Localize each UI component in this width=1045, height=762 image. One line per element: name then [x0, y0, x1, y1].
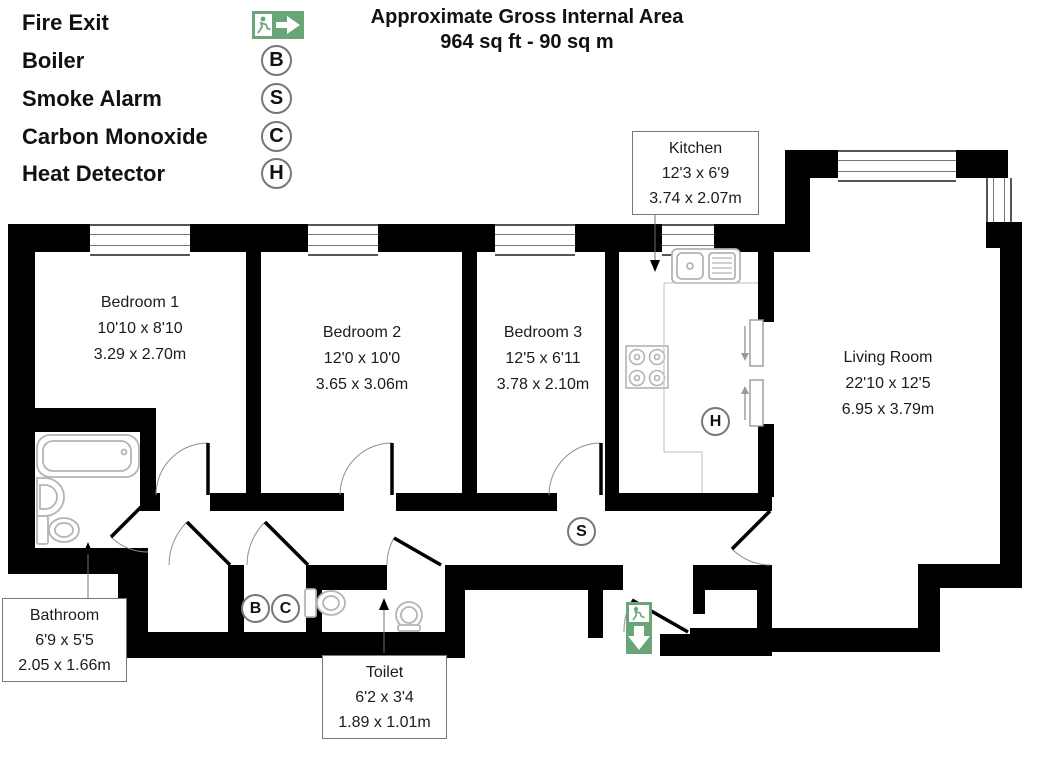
bathroom-name: Bathroom: [5, 603, 124, 628]
bathroom-imperial: 6'9 x 5'5: [5, 628, 124, 653]
boiler-symbol-plan: B: [241, 594, 270, 623]
toilet-label-box: Toilet 6'2 x 3'4 1.89 x 1.01m: [322, 655, 447, 739]
boiler-letter-plan: B: [250, 600, 262, 618]
window: [308, 224, 378, 256]
toilet-metric: 1.89 x 1.01m: [325, 710, 444, 735]
wall: [660, 634, 772, 656]
title-line-2: 964 sq ft - 90 sq m: [371, 30, 684, 55]
bedroom2-door: [340, 443, 392, 495]
entrance-door: [624, 600, 688, 632]
bedroom2-metric: 3.65 x 3.06m: [316, 372, 409, 398]
wall: [757, 590, 772, 638]
bedroom3-door: [549, 443, 601, 495]
wall: [605, 493, 772, 511]
boiler-symbol-legend: B: [261, 45, 292, 76]
smoke-alarm-symbol-legend: S: [261, 83, 292, 114]
toilet-door: [387, 538, 441, 565]
wall: [605, 252, 619, 495]
wall: [758, 424, 774, 497]
heat-letter-plan: H: [710, 413, 722, 431]
kitchen-name: Kitchen: [635, 136, 756, 161]
smoke-letter-plan: S: [576, 523, 587, 541]
kitchen-metric: 3.74 x 2.07m: [635, 186, 756, 211]
cupboard2-door: [247, 522, 308, 565]
wall: [693, 565, 772, 590]
cupboard1-door: [169, 522, 230, 565]
wall: [140, 493, 160, 511]
wall: [140, 408, 156, 500]
window: [986, 178, 1012, 222]
bathroom-basin-icon: [37, 478, 64, 516]
window: [662, 224, 714, 256]
fire-exit-right-icon: [252, 11, 304, 39]
window: [90, 224, 190, 256]
bathtub-icon: [37, 435, 139, 477]
legend-label-carbon-monoxide: Carbon Monoxide: [22, 124, 208, 150]
wall: [588, 590, 603, 638]
wall: [1000, 248, 1022, 588]
toilet-imperial: 6'2 x 3'4: [325, 685, 444, 710]
wall: [306, 565, 322, 632]
living-room-label: Living Room 22'10 x 12'5 6.95 x 3.79m: [842, 345, 935, 423]
legend-label-boiler: Boiler: [22, 48, 84, 74]
window: [838, 150, 956, 182]
smoke-letter: S: [270, 87, 283, 110]
legend-label-heat-detector: Heat Detector: [22, 161, 165, 187]
hob-icon: [626, 346, 668, 388]
kitchen-label-box: Kitchen 12'3 x 6'9 3.74 x 2.07m: [632, 131, 759, 215]
wall: [465, 565, 623, 590]
heat-detector-symbol-plan: H: [701, 407, 730, 436]
wall: [445, 565, 465, 658]
wall: [758, 252, 774, 322]
wall: [322, 565, 387, 590]
bedroom1-name: Bedroom 1: [94, 290, 187, 316]
bedroom2-imperial: 12'0 x 10'0: [316, 346, 409, 372]
wall: [785, 150, 810, 252]
kitchen-worktop-outline: [664, 283, 758, 493]
living-room-metric: 6.95 x 3.79m: [842, 397, 935, 423]
wall: [396, 493, 557, 511]
hallway-living-door: [732, 511, 770, 565]
carbon-monoxide-symbol-legend: C: [261, 121, 292, 152]
legend-label-fire-exit: Fire Exit: [22, 10, 109, 36]
bathroom-metric: 2.05 x 1.66m: [5, 653, 124, 678]
toilet-basin-icon: [396, 602, 422, 631]
wall: [228, 565, 244, 632]
living-room-name: Living Room: [842, 345, 935, 371]
wall: [8, 224, 35, 574]
wall: [8, 408, 156, 432]
bedroom1-door: [156, 443, 208, 495]
window: [495, 224, 575, 256]
bedroom2-label: Bedroom 2 12'0 x 10'0 3.65 x 3.06m: [316, 320, 409, 398]
heat-detector-symbol-legend: H: [261, 158, 292, 189]
legend-label-smoke-alarm: Smoke Alarm: [22, 86, 162, 112]
bedroom3-imperial: 12'5 x 6'11: [497, 346, 590, 372]
bathroom-label-box: Bathroom 6'9 x 5'5 2.05 x 1.66m: [2, 598, 127, 682]
bedroom1-label: Bedroom 1 10'10 x 8'10 3.29 x 2.70m: [94, 290, 187, 368]
kitchen-imperial: 12'3 x 6'9: [635, 161, 756, 186]
smoke-alarm-symbol-plan: S: [567, 517, 596, 546]
bedroom3-metric: 3.78 x 2.10m: [497, 372, 590, 398]
heat-letter: H: [269, 162, 283, 185]
bedroom3-name: Bedroom 3: [497, 320, 590, 346]
wall: [693, 590, 705, 614]
bedroom1-metric: 3.29 x 2.70m: [94, 342, 187, 368]
wall: [210, 493, 344, 511]
page-title: Approximate Gross Internal Area 964 sq f…: [371, 5, 684, 55]
co-letter: C: [269, 125, 283, 148]
carbon-monoxide-symbol-plan: C: [271, 594, 300, 623]
toilet-name: Toilet: [325, 660, 444, 685]
wall: [986, 222, 1022, 248]
title-line-1: Approximate Gross Internal Area: [371, 5, 684, 30]
bedroom2-name: Bedroom 2: [316, 320, 409, 346]
bathroom-wc-icon: [37, 516, 79, 544]
boiler-letter: B: [269, 49, 283, 72]
bedroom3-label: Bedroom 3 12'5 x 6'11 3.78 x 2.10m: [497, 320, 590, 398]
wall: [462, 252, 477, 495]
fire-exit-down-icon: [626, 602, 652, 654]
floorplan-canvas: Fire Exit Boiler Smoke Alarm Carbon Mono…: [0, 0, 1045, 762]
living-room-imperial: 22'10 x 12'5: [842, 371, 935, 397]
wall: [246, 252, 261, 495]
co-letter-plan: C: [280, 600, 292, 618]
kitchen-sliding-doors: [741, 320, 763, 426]
bedroom1-imperial: 10'10 x 8'10: [94, 316, 187, 342]
